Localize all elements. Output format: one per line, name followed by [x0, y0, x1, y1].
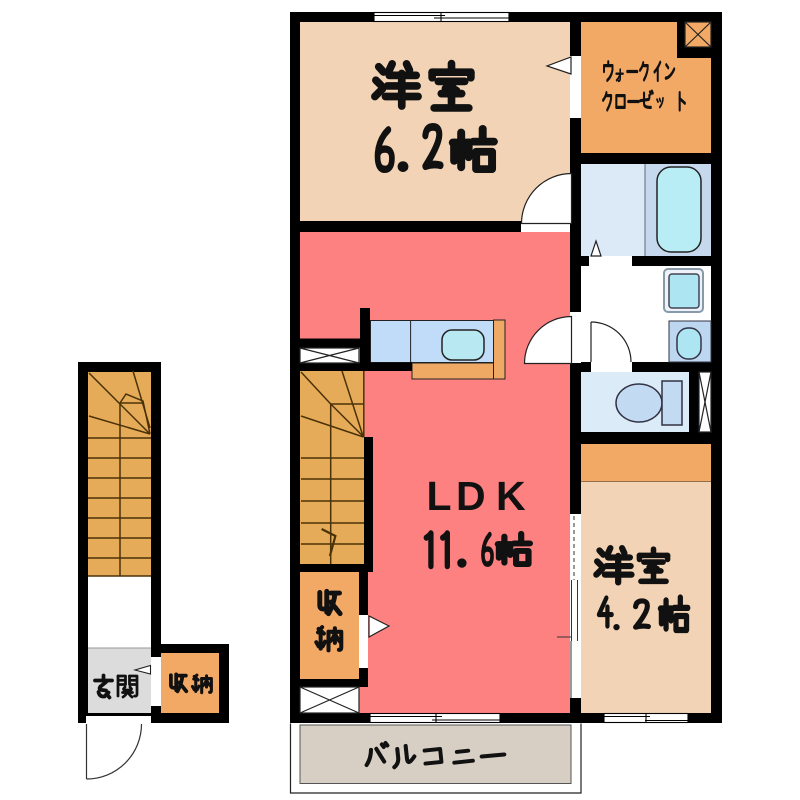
svg-text:L: L — [427, 473, 452, 519]
svg-text:K: K — [496, 473, 526, 519]
svg-text:D: D — [456, 473, 486, 519]
